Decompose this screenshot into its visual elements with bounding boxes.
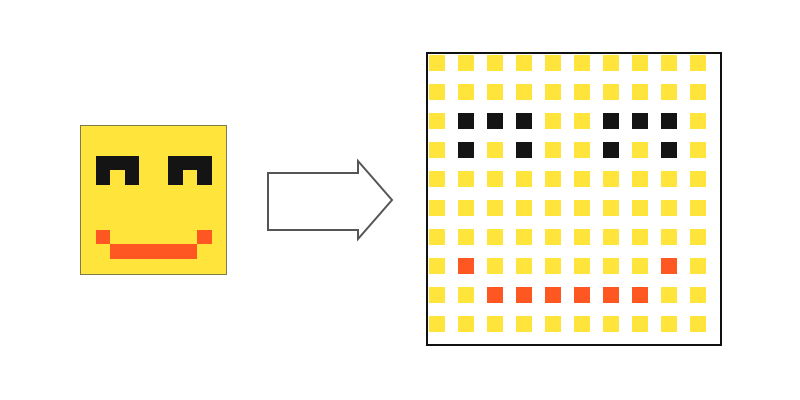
output-pixel-dot xyxy=(545,229,561,245)
source-pixel xyxy=(183,244,198,259)
source-pixel xyxy=(125,215,140,230)
source-pixel xyxy=(197,185,212,200)
source-pixel xyxy=(183,200,198,215)
output-pixel-dot xyxy=(545,316,561,332)
output-pixel-dot xyxy=(661,200,677,216)
source-pixel xyxy=(212,230,227,245)
output-pixel-dot xyxy=(487,142,503,158)
source-pixel xyxy=(110,200,125,215)
output-pixel-dot xyxy=(429,171,445,187)
output-pixel-dot xyxy=(429,258,445,274)
output-pixel-dot xyxy=(690,84,706,100)
source-pixel xyxy=(125,200,140,215)
output-pixel-dot xyxy=(429,229,445,245)
output-pixel-dot xyxy=(603,113,619,129)
output-pixel-dot xyxy=(487,171,503,187)
source-pixel xyxy=(139,200,154,215)
source-pixel xyxy=(212,141,227,156)
output-pixel-dot xyxy=(574,229,590,245)
source-pixel xyxy=(197,126,212,141)
source-pixel xyxy=(197,156,212,171)
source-pixel xyxy=(139,126,154,141)
source-pixel xyxy=(183,230,198,245)
source-pixel xyxy=(212,185,227,200)
source-pixel xyxy=(110,230,125,245)
source-pixel xyxy=(139,156,154,171)
source-pixel xyxy=(81,259,96,274)
output-pixel-dot xyxy=(632,171,648,187)
source-pixel xyxy=(139,170,154,185)
source-pixel xyxy=(154,156,169,171)
source-pixel xyxy=(81,156,96,171)
output-pixel-dot xyxy=(603,229,619,245)
source-pixel xyxy=(125,170,140,185)
output-pixel-dot xyxy=(458,113,474,129)
source-pixel xyxy=(125,185,140,200)
source-pixel xyxy=(81,126,96,141)
source-pixel xyxy=(96,126,111,141)
output-pixel-dot xyxy=(574,287,590,303)
source-pixel xyxy=(81,244,96,259)
output-pixel-dot xyxy=(574,171,590,187)
pixel-dot-grid xyxy=(429,55,720,332)
source-pixel xyxy=(154,230,169,245)
source-pixel xyxy=(168,230,183,245)
source-pixel xyxy=(110,244,125,259)
output-pixel-dot xyxy=(690,113,706,129)
output-pixel-dot xyxy=(690,258,706,274)
source-pixel xyxy=(197,259,212,274)
output-pixel-dot xyxy=(603,55,619,71)
output-pixel-dot xyxy=(574,200,590,216)
output-pixel-dot xyxy=(487,287,503,303)
output-pixel-dot xyxy=(458,258,474,274)
source-pixel xyxy=(183,215,198,230)
output-pixel-dot xyxy=(516,200,532,216)
output-pixel-dot xyxy=(574,55,590,71)
source-pixel xyxy=(197,200,212,215)
output-pixel-dot xyxy=(516,258,532,274)
source-pixel xyxy=(81,230,96,245)
source-pixel xyxy=(96,185,111,200)
source-pixel xyxy=(96,215,111,230)
output-pixel-dot xyxy=(632,200,648,216)
source-pixel xyxy=(212,244,227,259)
source-pixel xyxy=(96,141,111,156)
source-pixel xyxy=(197,170,212,185)
output-pixel-dot xyxy=(516,55,532,71)
source-pixel xyxy=(110,170,125,185)
output-pixel-dot xyxy=(603,84,619,100)
output-pixel-dot xyxy=(429,287,445,303)
source-pixel xyxy=(110,126,125,141)
source-pixel xyxy=(168,259,183,274)
output-pixel-dot xyxy=(661,229,677,245)
source-pixel xyxy=(139,185,154,200)
output-pixel-dot xyxy=(632,287,648,303)
source-pixel xyxy=(154,185,169,200)
canvas xyxy=(0,0,800,400)
source-pixel xyxy=(154,126,169,141)
output-pixel-dot xyxy=(574,84,590,100)
output-pixel-dot xyxy=(487,55,503,71)
source-pixel xyxy=(183,259,198,274)
source-pixel xyxy=(168,200,183,215)
source-pixel xyxy=(154,215,169,230)
output-pixel-dot xyxy=(661,55,677,71)
source-pixel xyxy=(168,141,183,156)
source-pixel xyxy=(139,259,154,274)
output-pixel-dot xyxy=(661,113,677,129)
source-pixel xyxy=(139,244,154,259)
source-pixel xyxy=(168,185,183,200)
output-pixel-dot xyxy=(458,55,474,71)
source-pixel xyxy=(197,244,212,259)
source-pixel xyxy=(96,244,111,259)
output-pixel-dot xyxy=(487,316,503,332)
output-pixel-dot xyxy=(516,113,532,129)
source-pixel xyxy=(125,141,140,156)
output-pixel-dot xyxy=(632,55,648,71)
output-pixel-dot xyxy=(458,316,474,332)
output-pixel-dot xyxy=(603,171,619,187)
output-pixel-dot xyxy=(487,229,503,245)
output-pixel-dot xyxy=(429,55,445,71)
source-pixel xyxy=(212,200,227,215)
source-pixel xyxy=(183,141,198,156)
output-pixel-dot xyxy=(545,258,561,274)
output-pixel-dot xyxy=(661,258,677,274)
output-pixel-dot xyxy=(632,113,648,129)
output-pixel-dot xyxy=(690,200,706,216)
output-pixel-dot xyxy=(429,316,445,332)
source-pixel xyxy=(168,170,183,185)
source-pixel xyxy=(154,200,169,215)
pixel-art-source-image xyxy=(80,125,227,275)
source-pixel xyxy=(139,215,154,230)
source-pixel xyxy=(183,170,198,185)
output-pixel-dot xyxy=(429,200,445,216)
output-pixel-dot xyxy=(458,142,474,158)
source-pixel xyxy=(139,230,154,245)
source-pixel xyxy=(197,141,212,156)
source-pixel xyxy=(168,244,183,259)
output-pixel-dot xyxy=(574,142,590,158)
source-pixel xyxy=(110,141,125,156)
source-pixel xyxy=(212,259,227,274)
source-pixel xyxy=(110,215,125,230)
source-pixel xyxy=(96,170,111,185)
source-pixel xyxy=(96,200,111,215)
output-pixel-dot xyxy=(545,171,561,187)
output-pixel-dot xyxy=(603,142,619,158)
source-pixel xyxy=(154,244,169,259)
output-pixel-dot xyxy=(487,258,503,274)
output-pixel-dot xyxy=(545,287,561,303)
source-pixel xyxy=(154,259,169,274)
source-pixel xyxy=(125,156,140,171)
source-pixel xyxy=(81,141,96,156)
source-pixel xyxy=(110,185,125,200)
source-pixel xyxy=(197,215,212,230)
output-pixel-dot xyxy=(516,142,532,158)
output-pixel-dot xyxy=(487,84,503,100)
source-pixel xyxy=(154,141,169,156)
source-pixel xyxy=(183,156,198,171)
output-pixel-dot xyxy=(632,258,648,274)
right-arrow-icon xyxy=(263,152,397,246)
output-pixel-dot xyxy=(458,287,474,303)
source-pixel xyxy=(125,259,140,274)
source-pixel xyxy=(96,259,111,274)
source-pixel xyxy=(168,215,183,230)
output-pixel-dot xyxy=(429,84,445,100)
source-pixel xyxy=(81,215,96,230)
output-pixel-dot xyxy=(661,287,677,303)
output-pixel-dot xyxy=(661,316,677,332)
output-pixel-dot xyxy=(458,200,474,216)
source-pixel xyxy=(212,156,227,171)
output-pixel-dot xyxy=(545,55,561,71)
output-pixel-dot xyxy=(458,229,474,245)
output-pixel-dot xyxy=(516,229,532,245)
output-pixel-dot xyxy=(661,171,677,187)
output-pixel-dot xyxy=(516,287,532,303)
output-pixel-dot xyxy=(603,316,619,332)
output-pixel-dot xyxy=(545,84,561,100)
output-pixel-dot xyxy=(632,84,648,100)
output-pixel-dot xyxy=(516,84,532,100)
source-pixel xyxy=(96,156,111,171)
source-pixel xyxy=(168,156,183,171)
output-pixel-dot xyxy=(661,84,677,100)
source-pixel xyxy=(212,215,227,230)
source-pixel xyxy=(212,126,227,141)
output-pixel-dot xyxy=(516,316,532,332)
output-pixel-dot xyxy=(574,316,590,332)
source-pixel xyxy=(81,200,96,215)
output-pixel-dot xyxy=(603,258,619,274)
output-pixel-dot xyxy=(574,113,590,129)
output-pixel-dot xyxy=(429,142,445,158)
source-pixel xyxy=(81,185,96,200)
output-pixel-dot xyxy=(690,287,706,303)
source-pixel xyxy=(154,170,169,185)
source-pixel xyxy=(110,156,125,171)
pixelated-output-panel xyxy=(426,52,722,346)
source-pixel xyxy=(168,126,183,141)
source-pixel xyxy=(183,185,198,200)
output-pixel-dot xyxy=(690,316,706,332)
output-pixel-dot xyxy=(603,287,619,303)
output-pixel-dot xyxy=(545,142,561,158)
output-pixel-dot xyxy=(690,171,706,187)
source-pixel xyxy=(81,170,96,185)
source-pixel xyxy=(96,230,111,245)
output-pixel-dot xyxy=(516,171,532,187)
source-pixel xyxy=(125,230,140,245)
source-pixel xyxy=(183,126,198,141)
output-pixel-dot xyxy=(632,229,648,245)
output-pixel-dot xyxy=(458,171,474,187)
output-pixel-dot xyxy=(487,200,503,216)
output-pixel-dot xyxy=(690,229,706,245)
source-pixel xyxy=(125,126,140,141)
output-pixel-dot xyxy=(545,200,561,216)
source-pixel xyxy=(125,244,140,259)
output-pixel-dot xyxy=(429,113,445,129)
output-pixel-dot xyxy=(458,84,474,100)
source-pixel xyxy=(139,141,154,156)
output-pixel-dot xyxy=(632,142,648,158)
source-pixel xyxy=(212,170,227,185)
output-pixel-dot xyxy=(661,142,677,158)
output-pixel-dot xyxy=(690,55,706,71)
output-pixel-dot xyxy=(545,113,561,129)
output-pixel-dot xyxy=(574,258,590,274)
output-pixel-dot xyxy=(603,200,619,216)
source-pixel xyxy=(110,259,125,274)
output-pixel-dot xyxy=(632,316,648,332)
output-pixel-dot xyxy=(487,113,503,129)
output-pixel-dot xyxy=(690,142,706,158)
source-pixel xyxy=(197,230,212,245)
